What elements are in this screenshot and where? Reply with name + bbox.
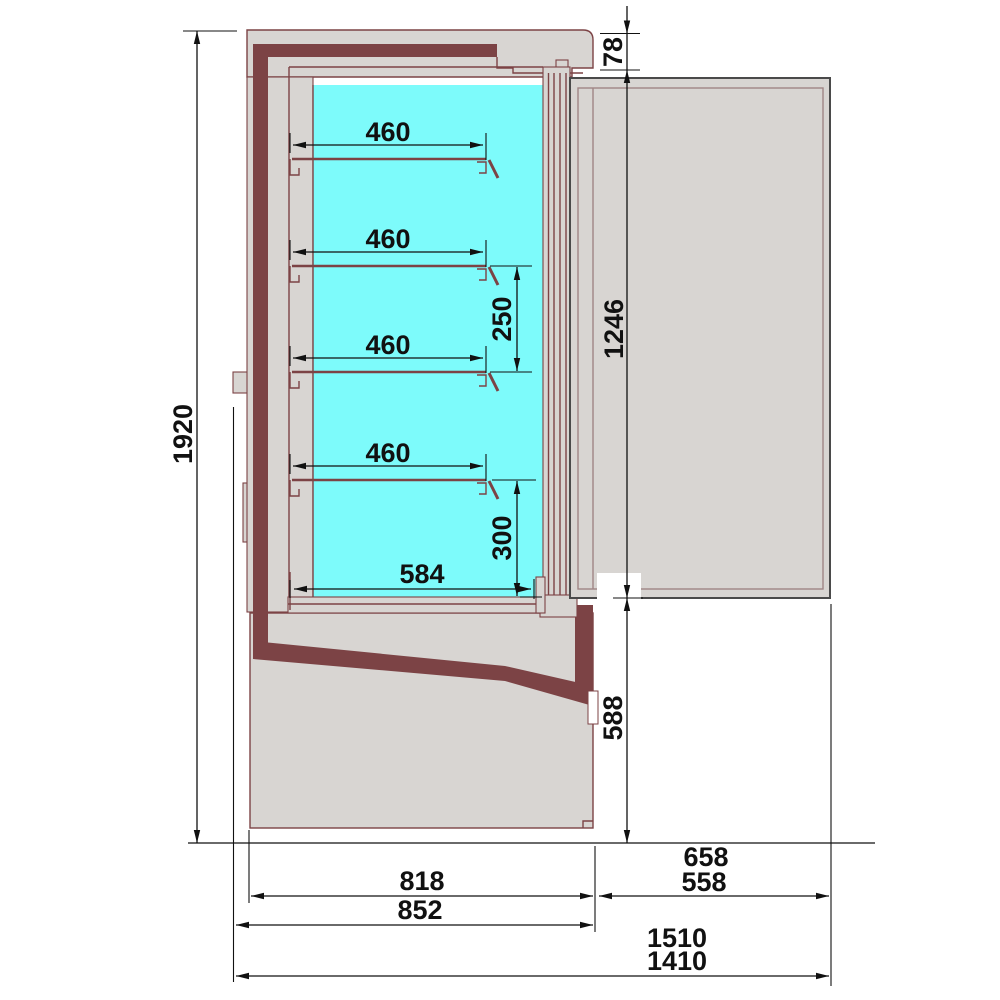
dim-label-1920: 1920 xyxy=(168,404,198,464)
base-insulation-front xyxy=(575,605,593,688)
bottom-deck-riser xyxy=(536,577,545,613)
door-hinge-cutout xyxy=(597,573,641,599)
dim-label-460-1: 460 xyxy=(365,117,410,147)
dim-658-558: 658 558 xyxy=(599,842,829,899)
dim-label-588: 588 xyxy=(598,695,628,740)
dim-label-558: 558 xyxy=(681,867,726,897)
base-vent-notch xyxy=(588,691,598,724)
dim-label-250: 250 xyxy=(487,296,517,341)
dim-label-460-2: 460 xyxy=(365,224,410,254)
rear-insulation xyxy=(253,44,268,649)
dim-label-460-3: 460 xyxy=(365,330,410,360)
dim-label-584: 584 xyxy=(399,559,444,589)
dim-label-1410: 1410 xyxy=(647,946,707,976)
dim-label-1246: 1246 xyxy=(599,299,629,359)
cabinet-structure xyxy=(233,30,830,828)
dim-overall-height: 1920 xyxy=(168,31,237,843)
technical-drawing-page: 1920 78 1246 588 460 xyxy=(0,0,1000,1000)
dim-1410: 1410 xyxy=(236,946,829,979)
dim-label-460-4: 460 xyxy=(365,438,410,468)
dim-label-78: 78 xyxy=(598,37,628,67)
dim-label-818: 818 xyxy=(399,866,444,896)
cabinet-section-drawing: 1920 78 1246 588 460 xyxy=(0,0,1000,1000)
dim-label-852: 852 xyxy=(397,895,442,925)
dim-label-300: 300 xyxy=(487,515,517,560)
dim-852: 852 xyxy=(236,895,593,928)
top-insulation xyxy=(253,44,497,57)
bottom-deck xyxy=(288,597,540,613)
base-compartment xyxy=(250,613,593,828)
